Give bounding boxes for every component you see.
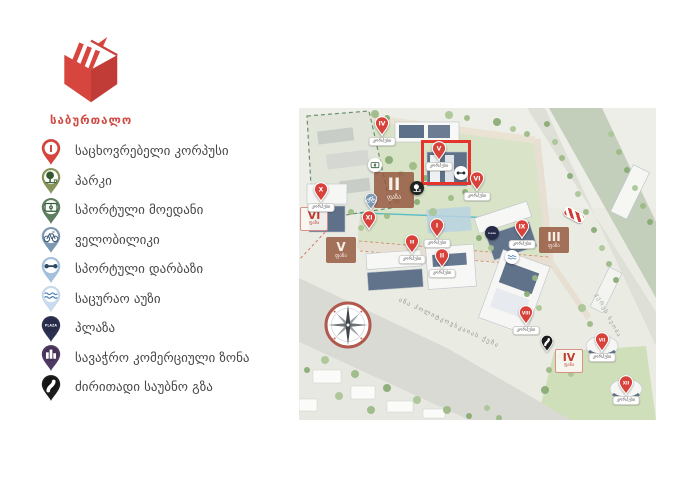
svg-text:IX: IX — [519, 224, 526, 231]
legend-item-residential[interactable]: Iსაცხოვრებელი კორპუსი — [40, 137, 249, 167]
phase-label-III: IIIფაზა — [539, 227, 569, 253]
legend-item-label: პლაზა — [75, 321, 115, 336]
site-map: IIფაზაIIIფაზაVფაზაVIფაზაIVფაზაIVკორპუსიV… — [299, 108, 656, 420]
building-label: კორპუსი — [426, 162, 453, 171]
bike-path-pin-icon — [40, 226, 62, 254]
building-label: კორპუსი — [589, 353, 616, 362]
map-pin-VII[interactable]: VII — [594, 332, 610, 352]
svg-text:XII: XII — [623, 381, 630, 387]
svg-text:PLAZA: PLAZA — [488, 233, 496, 235]
map-pin-XII[interactable]: XII — [618, 375, 634, 395]
phase-label-V: Vფაზა — [326, 237, 356, 263]
building-label: კორპუსი — [464, 192, 491, 201]
building-label: კორპუსი — [308, 203, 335, 212]
svg-text:IV: IV — [379, 121, 386, 128]
map-pin-VIII[interactable]: VIII — [518, 305, 534, 325]
bike-path-marker[interactable] — [364, 192, 378, 210]
park-pin-icon — [40, 167, 62, 195]
svg-text:V: V — [437, 146, 442, 153]
m2-cube-icon — [52, 28, 130, 104]
building-label: კორპუსი — [399, 255, 426, 264]
map-pin-VI[interactable]: VI — [469, 171, 485, 191]
building-label: კორპუსი — [429, 269, 456, 278]
residential-pin-icon: I — [40, 138, 62, 166]
building-label: კორპუსი — [509, 240, 536, 249]
sports-hall-pin-icon — [40, 256, 62, 284]
legend-item-swimming-pool[interactable]: საცურაო აუზი — [40, 285, 249, 315]
map-pin-III[interactable]: III — [404, 234, 420, 254]
sports-hall-marker[interactable] — [454, 166, 468, 180]
legend-item-commercial-zone[interactable]: სავაჭრო კომერციული ზონა — [40, 344, 249, 374]
swimming-pool-marker[interactable] — [505, 250, 519, 264]
legend-item-label: პარკი — [75, 174, 112, 189]
legend-item-label: ველობილიკი — [75, 233, 160, 248]
svg-text:VIII: VIII — [522, 311, 531, 317]
legend-item-label: ძირითადი საუბნო გზა — [75, 380, 213, 395]
map-pin-IV[interactable]: IV — [374, 116, 390, 136]
legend-item-label: საცურაო აუზი — [75, 292, 161, 307]
map-pin-II[interactable]: II — [434, 248, 450, 268]
building-label: კორპუსი — [613, 396, 640, 405]
svg-text:VII: VII — [599, 338, 606, 344]
project-title: საბურთალო — [50, 113, 132, 127]
legend-item-plaza[interactable]: PLAZAპლაზა — [40, 314, 249, 344]
plaza-marker[interactable]: PLAZA — [485, 226, 499, 240]
legend-item-main-road[interactable]: ძირითადი საუბნო გზა — [40, 373, 249, 403]
swimming-pool-pin-icon — [40, 285, 62, 313]
phase-label-II: IIფაზა — [374, 172, 414, 208]
phase-label-IV: IVფაზა — [555, 349, 583, 373]
park-marker[interactable] — [410, 181, 424, 195]
legend-item-sports-hall[interactable]: სპორტული დარბაზი — [40, 255, 249, 285]
legend-item-bike-path[interactable]: ველობილიკი — [40, 226, 249, 256]
map-pin-I[interactable]: I — [429, 218, 445, 238]
map-illustration — [299, 108, 656, 420]
map-pin-V[interactable]: V — [431, 141, 447, 161]
svg-text:VI: VI — [474, 176, 481, 183]
legend-item-label: სპორტული მოედანი — [75, 203, 203, 218]
legend-item-label: სპორტული დარბაზი — [75, 262, 203, 277]
map-pin-IX[interactable]: IX — [514, 219, 530, 239]
building-label: კორპუსი — [424, 239, 451, 248]
map-pin-X[interactable]: X — [313, 182, 329, 202]
svg-text:II: II — [440, 253, 444, 260]
legend-item-label: სავაჭრო კომერციული ზონა — [75, 351, 249, 366]
main-road-pin-icon — [40, 374, 62, 402]
legend-item-sports-field[interactable]: სპორტული მოედანი — [40, 196, 249, 226]
legend-item-label: საცხოვრებელი კორპუსი — [75, 144, 229, 159]
sports-field-marker[interactable] — [368, 158, 382, 172]
building-label: კორპუსი — [513, 326, 540, 335]
svg-text:III: III — [410, 240, 415, 246]
svg-text:X: X — [319, 187, 324, 194]
sports-field-pin-icon — [40, 197, 62, 225]
svg-text:PLAZA: PLAZA — [45, 323, 58, 327]
page: საბურთალო Iსაცხოვრებელი კორპუსიპარკისპორ… — [0, 0, 700, 495]
svg-text:XI: XI — [366, 215, 373, 222]
commercial-zone-pin-icon — [40, 344, 62, 372]
svg-text:I: I — [49, 144, 53, 155]
plaza-pin-icon: PLAZA — [40, 315, 62, 343]
building-label: კორპუსი — [369, 137, 396, 146]
map-legend: Iსაცხოვრებელი კორპუსიპარკისპორტული მოედა… — [40, 137, 249, 403]
main-road-marker[interactable] — [540, 334, 554, 352]
compass-rose-icon — [323, 300, 373, 350]
brand-logo[interactable]: საბურთალო — [50, 28, 132, 127]
legend-item-park[interactable]: პარკი — [40, 167, 249, 197]
svg-text:I: I — [436, 223, 438, 230]
map-pin-XI[interactable]: XI — [361, 210, 377, 230]
